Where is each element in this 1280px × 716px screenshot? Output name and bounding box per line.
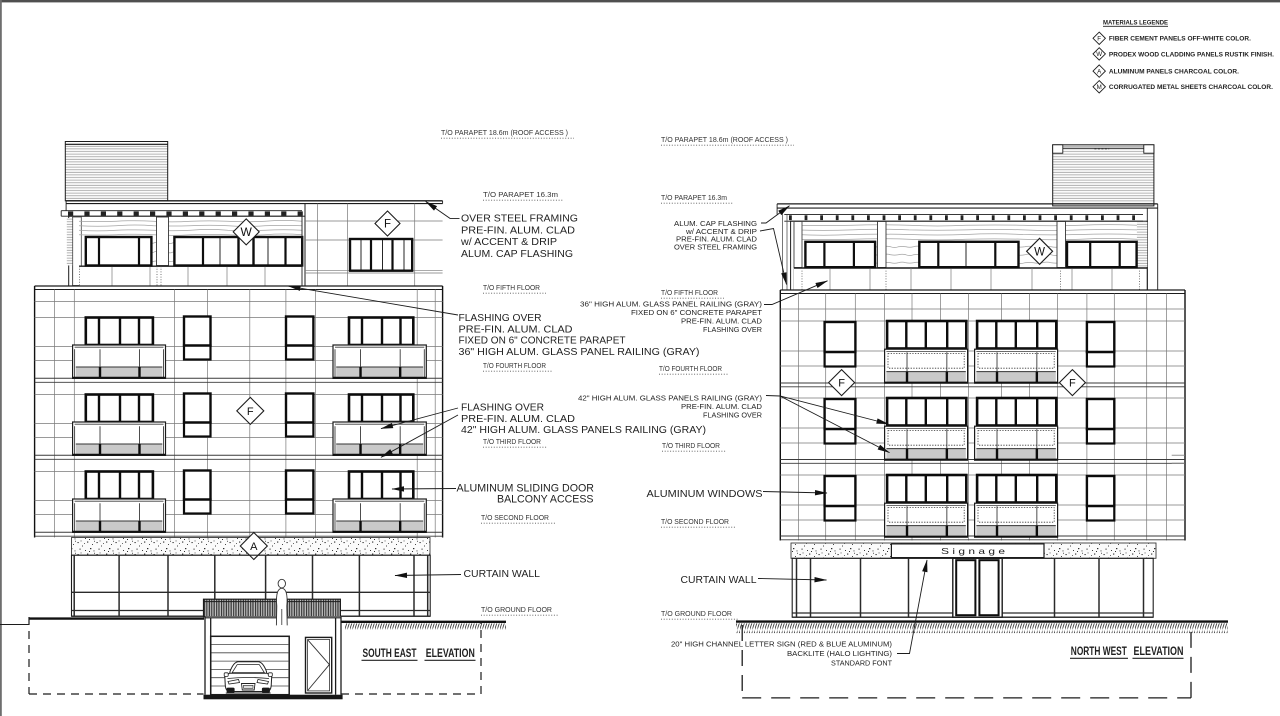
svg-text:T/O GROUND FLOOR: T/O GROUND FLOOR [481, 607, 552, 614]
svg-text:W: W [241, 225, 253, 239]
svg-text:T/O FOURTH FLOOR: T/O FOURTH FLOOR [659, 366, 722, 373]
svg-text:T/O FOURTH FLOOR: T/O FOURTH FLOOR [483, 363, 546, 370]
svg-text:CURTAIN WALL: CURTAIN WALL [681, 574, 757, 586]
svg-text:OVER STEEL FRAMING: OVER STEEL FRAMING [674, 242, 757, 251]
svg-text:FIXED ON 6" CONCRETE PARAPET: FIXED ON 6" CONCRETE PARAPET [459, 336, 626, 347]
svg-text:PRE-FIN. ALUM. CLAD: PRE-FIN. ALUM. CLAD [459, 324, 573, 335]
svg-text:NORTH WEST: NORTH WEST [1071, 646, 1127, 658]
svg-text:F: F [384, 219, 391, 231]
svg-text:FLASHING OVER: FLASHING OVER [461, 403, 544, 414]
svg-text:ELEVATION: ELEVATION [1134, 646, 1184, 658]
svg-text:PRE-FIN. ALUM. CLAD: PRE-FIN. ALUM. CLAD [461, 414, 575, 425]
svg-text:W: W [1096, 51, 1102, 58]
svg-text:20" HIGH CHANNEL LETTER SIGN (: 20" HIGH CHANNEL LETTER SIGN (RED & BLUE… [671, 640, 892, 649]
svg-text:T/O PARAPET 18.6m (ROOF ACCE: T/O PARAPET 18.6m (ROOF ACCESS ) [661, 137, 788, 144]
svg-text:42" HIGH ALUM. GLASS PANELS RA: 42" HIGH ALUM. GLASS PANELS RAILING (GRA… [461, 425, 706, 436]
svg-text:T/O SECOND FLOOR: T/O SECOND FLOOR [661, 519, 729, 526]
svg-text:ALUM. CAP FLASHING: ALUM. CAP FLASHING [461, 249, 573, 260]
svg-text:T/O SECOND FLOOR: T/O SECOND FLOOR [481, 515, 549, 522]
svg-text:w/ ACCENT & DRIP: w/ ACCENT & DRIP [460, 237, 557, 248]
svg-text:F: F [247, 406, 254, 418]
svg-text:36" HIGH ALUM. GLASS PANEL RA: 36" HIGH ALUM. GLASS PANEL RAILING (GRAY… [459, 347, 700, 358]
svg-text:BACKLITE (HALO LIGHTING): BACKLITE (HALO LIGHTING) [787, 649, 892, 658]
svg-text:F: F [1069, 378, 1076, 390]
svg-text:FIBER CEMENT PANELS OFF-WHITE: FIBER CEMENT PANELS OFF-WHITE COLOR. [1109, 36, 1251, 43]
svg-text:ELEVATION: ELEVATION [426, 648, 475, 660]
svg-text:T/O FIFTH FLOOR: T/O FIFTH FLOOR [661, 290, 718, 297]
svg-text:SOUTH EAST: SOUTH EAST [363, 648, 417, 660]
svg-text:ALUMINUM WINDOWS: ALUMINUM WINDOWS [647, 488, 763, 500]
svg-text:PRE-FIN. ALUM. CLAD: PRE-FIN. ALUM. CLAD [461, 225, 575, 236]
svg-text:BALCONY ACCESS: BALCONY ACCESS [497, 494, 594, 506]
svg-text:T/O PARAPET 16.3m: T/O PARAPET 16.3m [661, 195, 727, 202]
svg-text:FLASHING OVER: FLASHING OVER [703, 325, 762, 334]
svg-text:T/O PARAPET 16.3m: T/O PARAPET 16.3m [483, 192, 558, 199]
svg-text:T/O FIFTH FLOOR: T/O FIFTH FLOOR [483, 285, 540, 292]
svg-text:F: F [1097, 36, 1101, 43]
svg-text:W: W [1034, 246, 1045, 258]
svg-text:FLASHING OVER: FLASHING OVER [703, 411, 762, 420]
svg-text:MATERIALS LEGENDE: MATERIALS LEGENDE [1103, 20, 1168, 27]
svg-text:CORRUGATED METAL SHEETS CHARCO: CORRUGATED METAL SHEETS CHARCOAL COLOR. [1109, 84, 1273, 91]
svg-text:T/O GROUND FLOOR: T/O GROUND FLOOR [661, 611, 732, 618]
svg-text:A: A [250, 541, 258, 553]
svg-text:F: F [838, 378, 845, 390]
svg-text:S i g n a g e: S i g n a g e [941, 546, 1005, 556]
svg-text:OVER STEEL FRAMING: OVER STEEL FRAMING [461, 214, 578, 225]
svg-text:FLASHING OVER: FLASHING OVER [459, 313, 542, 324]
svg-text:T/O THIRD FLOOR: T/O THIRD FLOOR [662, 443, 720, 450]
svg-text:M: M [1097, 84, 1102, 91]
svg-text:T/O THIRD FLOOR: T/O THIRD FLOOR [483, 439, 541, 446]
svg-text:T/O PARAPET 18.6m (ROOF ACCE: T/O PARAPET 18.6m (ROOF ACCESS ) [441, 130, 568, 137]
svg-text:PRODEX WOOD CLADDING PANELS RU: PRODEX WOOD CLADDING PANELS RUSTIK FINIS… [1109, 51, 1274, 58]
svg-text:CURTAIN WALL: CURTAIN WALL [464, 568, 541, 580]
svg-text:ALUMINUM PANELS CHARCOAL COLOR: ALUMINUM PANELS CHARCOAL COLOR. [1109, 69, 1239, 76]
svg-text:STANDARD FONT: STANDARD FONT [831, 659, 893, 668]
